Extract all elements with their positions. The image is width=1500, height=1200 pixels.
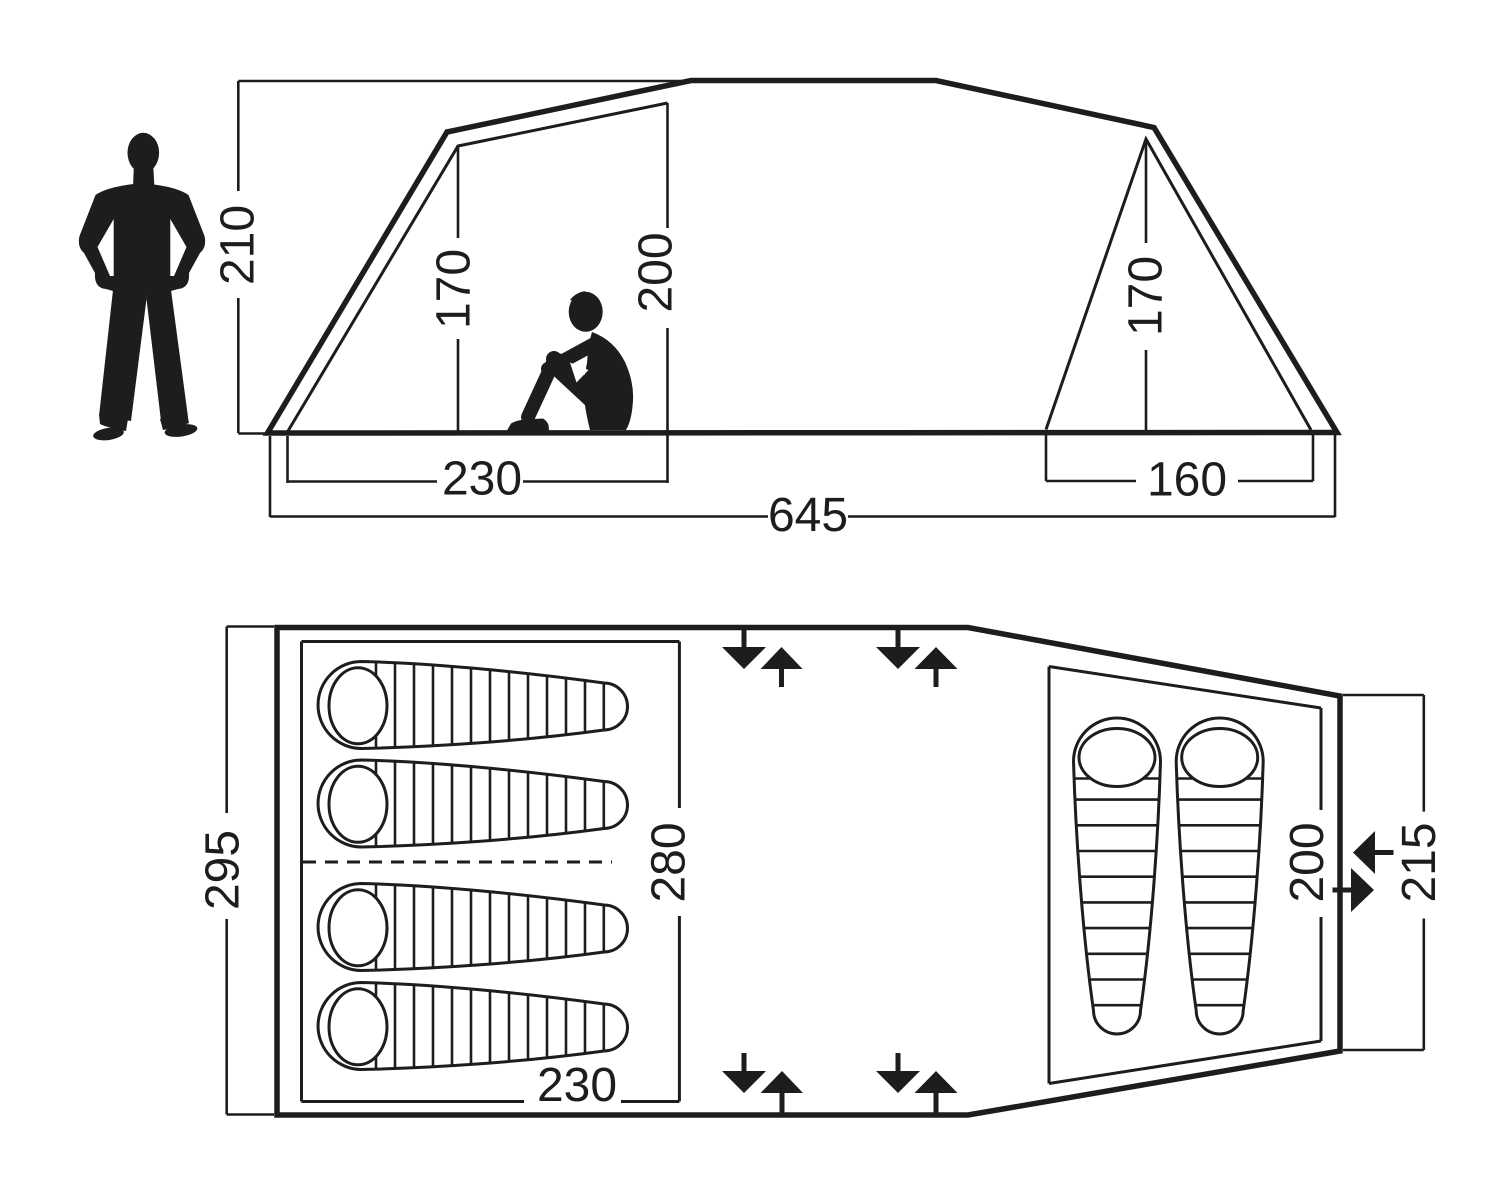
svg-text:160: 160 (1147, 454, 1227, 507)
svg-text:215: 215 (1393, 822, 1446, 902)
svg-text:230: 230 (537, 1059, 617, 1112)
svg-text:170: 170 (1120, 256, 1173, 336)
svg-text:230: 230 (442, 453, 522, 506)
svg-text:200: 200 (630, 232, 683, 312)
svg-text:645: 645 (768, 489, 848, 542)
svg-text:210: 210 (212, 205, 265, 285)
svg-text:170: 170 (428, 249, 481, 329)
svg-text:200: 200 (1281, 822, 1334, 902)
svg-text:295: 295 (197, 830, 250, 910)
svg-text:280: 280 (643, 822, 696, 902)
